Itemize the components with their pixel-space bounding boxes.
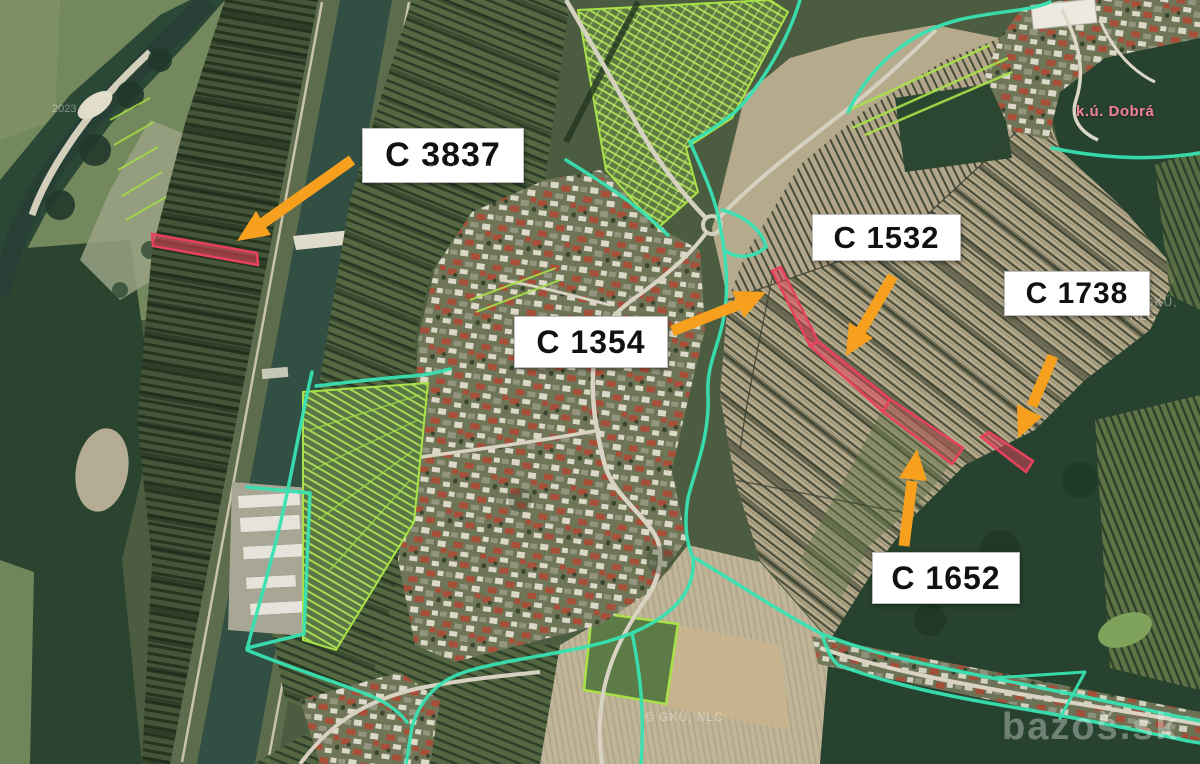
satellite-map xyxy=(0,0,1200,764)
ortho-credit: © GKÚ, NLC xyxy=(413,162,492,176)
region-label: k.ú. Dobrá xyxy=(1076,103,1154,120)
parcel-label-C1532: C 1532 xyxy=(812,214,961,261)
parcel-label-C1354: C 1354 xyxy=(514,316,668,368)
cadastral-satellite-map-screenshot: C 3837 C 1354 C 1532 C 1738 C 1652 k.ú. … xyxy=(0,0,1200,764)
ortho-credit: © GKÚ, NLC xyxy=(645,710,724,724)
parcel-label-C1652: C 1652 xyxy=(872,552,1020,604)
ortho-credit: © GKÚ, NLC xyxy=(1130,295,1200,323)
parcel-label-C1738: C 1738 xyxy=(1004,271,1150,316)
ortho-year-mark: 2023 xyxy=(52,103,76,115)
site-watermark: bazoš.sk xyxy=(1002,706,1179,749)
farm-industrial-site xyxy=(228,482,310,636)
